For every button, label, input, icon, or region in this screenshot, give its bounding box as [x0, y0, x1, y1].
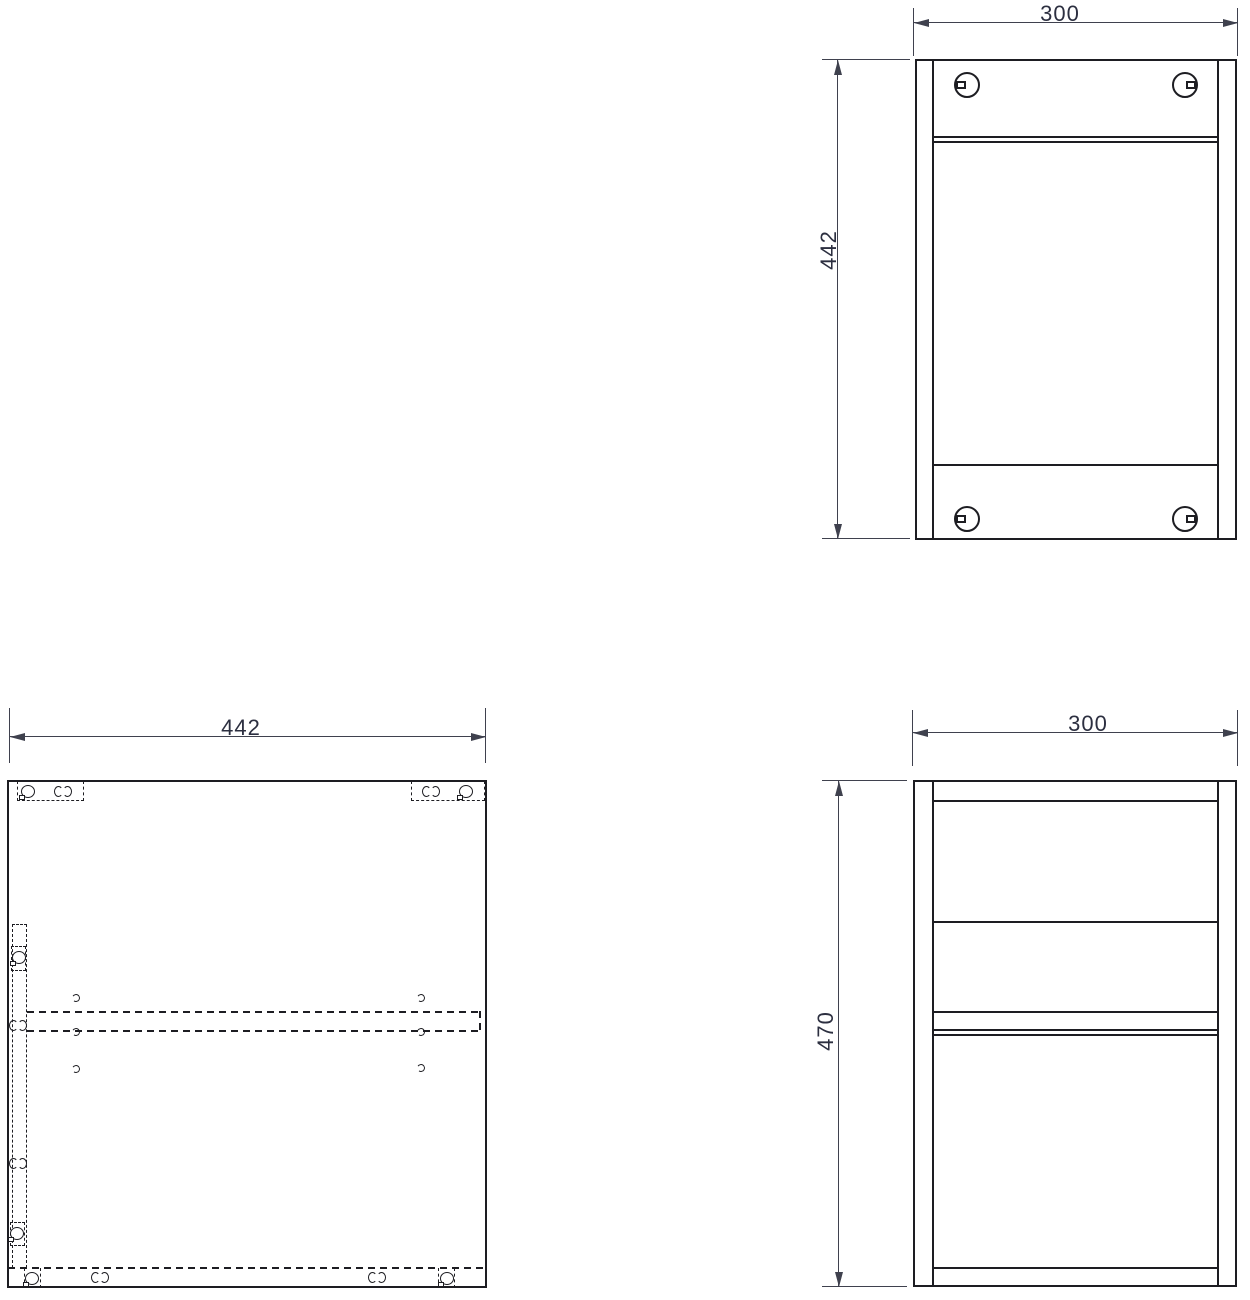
rail-front: [932, 1011, 1219, 1031]
dimension-label-width: 300: [1058, 711, 1118, 737]
extension-line: [1237, 710, 1238, 766]
shelf-line: [934, 800, 1217, 802]
shelf-line: [934, 921, 1217, 923]
dimension-arrow: [835, 1272, 843, 1287]
dimension-arrow: [835, 781, 843, 796]
dimension-line: [838, 781, 839, 1287]
shelf-line: [934, 1034, 1217, 1036]
shelf-line: [934, 1267, 1217, 1269]
dimension-arrow: [913, 729, 928, 737]
dimension-label-height: 470: [814, 996, 838, 1066]
dimension-arrow: [1223, 729, 1238, 737]
extension-line: [912, 710, 913, 766]
drawing-canvas: 300 442 442: [0, 0, 1250, 1300]
side-rail-line: [1217, 782, 1219, 1285]
view-front-elevation: 300 470: [0, 0, 1250, 1300]
